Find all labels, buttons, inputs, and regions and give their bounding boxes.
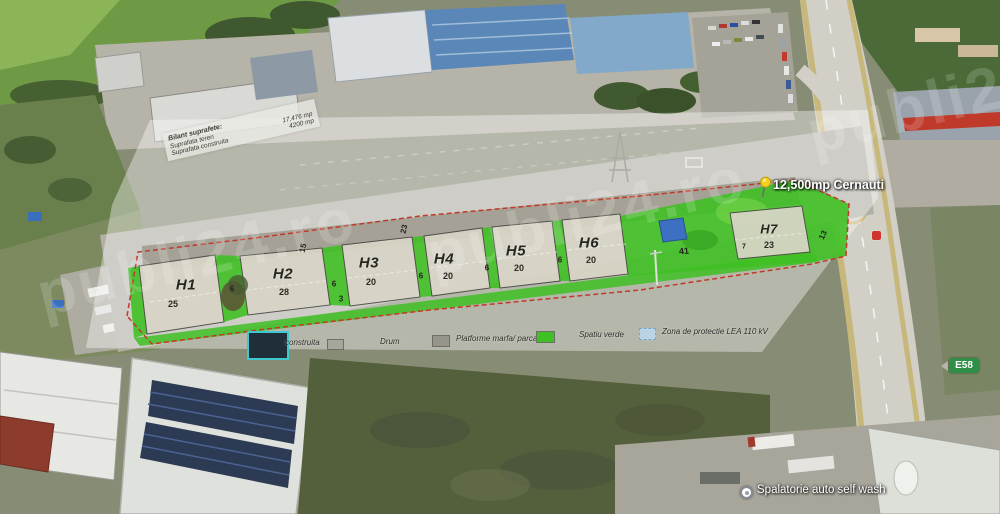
dim-15: 15 xyxy=(298,243,309,254)
legend-item-lea-110kv: Zona de protectie LEA 110 kV xyxy=(662,327,768,336)
aerial-photo xyxy=(0,0,1000,514)
parcel-label-h4: H4 xyxy=(434,251,454,268)
dim-gap-1: 6 xyxy=(230,285,234,294)
poi-label-car-wash[interactable]: Spalatorie auto self wash xyxy=(757,484,886,496)
legend-item-drum: Drum xyxy=(380,337,400,346)
legend-item-constructii: construita xyxy=(285,338,320,347)
dim-23: 23 xyxy=(399,224,410,235)
poi-marker-icon[interactable] xyxy=(740,486,753,499)
parcel-value-h7: 23 xyxy=(764,240,774,250)
parcel-label-h6: H6 xyxy=(579,235,599,252)
legend-swatch-lea xyxy=(639,328,656,340)
dim-gap-2: 6 xyxy=(332,280,336,289)
parcel-label-h2: H2 xyxy=(273,266,293,283)
parcel-value-h5: 20 xyxy=(514,263,524,273)
parcel-label-h3: H3 xyxy=(359,255,379,272)
road-shield-e58: E58 xyxy=(949,358,979,373)
parcel-value-h3: 20 xyxy=(366,277,376,287)
parcel-label-h5: H5 xyxy=(506,243,526,260)
legend-swatch-drum xyxy=(327,339,344,350)
parcel-label-h1: H1 xyxy=(176,277,196,294)
parcel-value-h6: 20 xyxy=(586,255,596,265)
legend-item-spatiu-verde: Spatiu verde xyxy=(579,330,624,339)
dim-gap-4: 6 xyxy=(485,264,489,273)
legend-swatch-platforme xyxy=(432,335,450,347)
dim-gap-3: 6 xyxy=(419,272,423,281)
parcel-label-h7: H7 xyxy=(760,222,778,237)
dim-3: 3 xyxy=(339,295,343,304)
road-shield-pointer xyxy=(941,361,948,371)
aerial-site-plan-image: publi24.ro publi24.ro publi24.ro Bilant … xyxy=(0,0,1000,514)
dim-41-green-zone: 41 xyxy=(679,246,690,257)
dim-7: 7 xyxy=(742,244,746,251)
road-sign-red xyxy=(872,231,881,240)
parcel-value-h1: 25 xyxy=(168,299,178,309)
pin-label[interactable]: 12,500mp Cernauti xyxy=(773,178,884,192)
parcel-value-h2: 28 xyxy=(279,287,289,297)
legend-swatch-spatiu-verde xyxy=(536,331,555,343)
parcel-value-h4: 20 xyxy=(443,271,453,281)
legend-item-platforme: Platforme marfa/ parcari xyxy=(456,334,542,343)
dim-gap-5: 6 xyxy=(558,256,562,265)
